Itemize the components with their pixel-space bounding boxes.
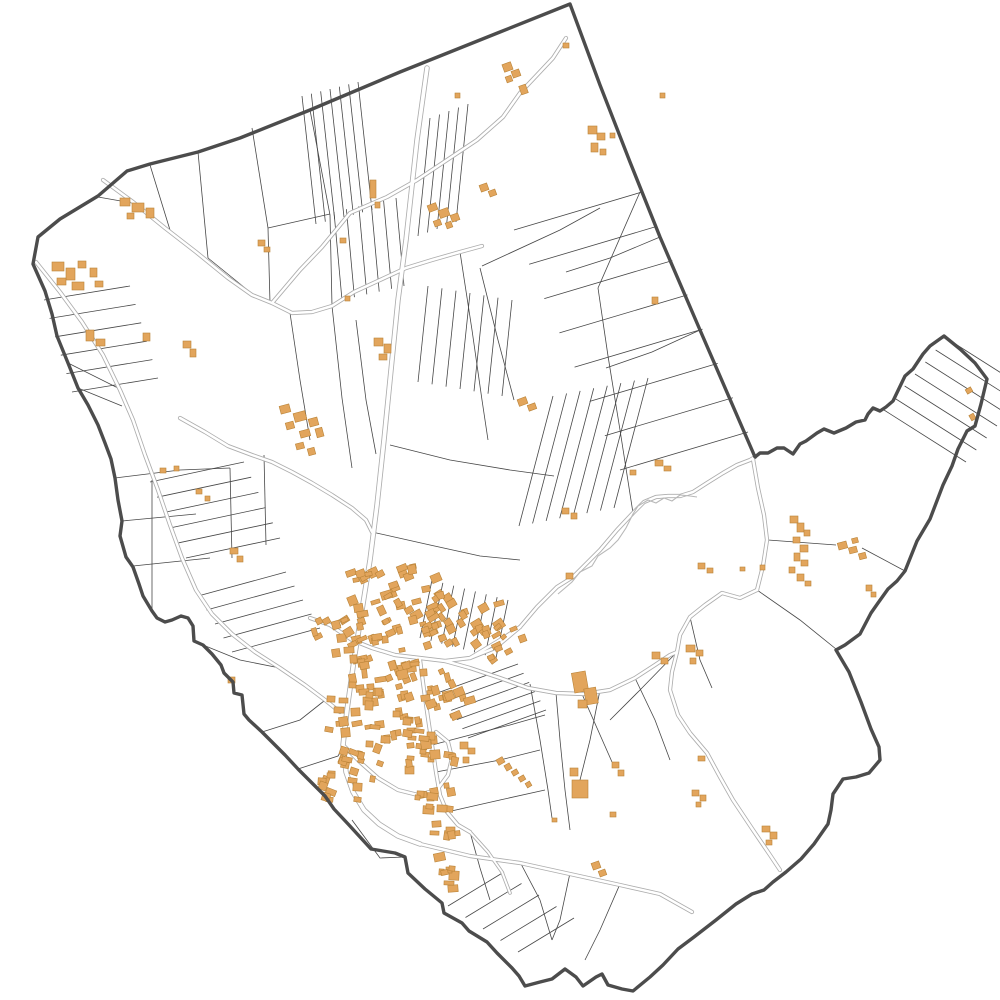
parcel-line [447, 790, 545, 812]
building [279, 404, 291, 414]
building [174, 466, 179, 471]
building [766, 840, 772, 845]
building [196, 489, 202, 494]
building [797, 523, 804, 532]
building [327, 696, 335, 702]
parcel-line [390, 445, 554, 476]
building [578, 700, 587, 708]
building [371, 599, 381, 605]
parcel-line [585, 884, 620, 960]
building [612, 762, 619, 768]
building [356, 622, 363, 630]
building [340, 617, 348, 624]
building [52, 262, 64, 271]
building [66, 268, 75, 280]
road-casing [103, 180, 482, 313]
strip-parcel-line [418, 286, 428, 382]
building [423, 641, 432, 650]
building [502, 62, 513, 73]
municipal-boundary [33, 4, 987, 991]
building [373, 743, 383, 754]
building [299, 429, 310, 438]
strip-parcel-line [573, 386, 607, 516]
building [407, 743, 415, 749]
building [285, 421, 295, 430]
building [455, 93, 460, 98]
building [591, 861, 601, 870]
building [600, 149, 606, 155]
building [376, 605, 386, 616]
building [374, 338, 383, 346]
building [146, 208, 154, 218]
road-fills [36, 38, 780, 912]
building [339, 698, 348, 703]
building [379, 354, 387, 360]
building [463, 757, 469, 763]
building [566, 573, 573, 579]
building [160, 468, 166, 473]
building [871, 592, 876, 597]
parcel-line [372, 532, 520, 560]
building [837, 541, 848, 550]
building [143, 333, 150, 341]
parcel-line [768, 540, 836, 545]
building [419, 735, 429, 741]
building [517, 397, 528, 407]
building [446, 787, 455, 796]
building [494, 600, 505, 608]
strip-parcel-line [50, 304, 136, 318]
parcel-line [862, 548, 905, 571]
road-casings [36, 38, 780, 912]
building [382, 636, 389, 644]
building [652, 297, 658, 304]
parcel-line [332, 306, 352, 468]
building [488, 189, 497, 197]
building [127, 213, 134, 219]
building [430, 750, 441, 760]
building [384, 344, 391, 353]
building [610, 133, 615, 138]
parcel-line [480, 268, 514, 400]
parcel-line [606, 330, 700, 368]
building [655, 460, 663, 466]
building [427, 792, 439, 800]
building [444, 881, 454, 885]
building [652, 652, 660, 659]
building [388, 660, 397, 671]
building [698, 756, 705, 761]
building [700, 795, 706, 801]
building [432, 821, 441, 828]
building [588, 126, 597, 134]
building [562, 508, 569, 514]
parcel-line [262, 701, 324, 732]
building [692, 790, 699, 796]
building [258, 240, 265, 246]
building [340, 238, 346, 243]
strip-parcel-line [605, 398, 733, 436]
building [421, 585, 430, 593]
building [350, 655, 357, 663]
building [793, 537, 800, 543]
building [438, 208, 450, 219]
building [447, 831, 455, 840]
building [790, 516, 798, 523]
strip-parcel-line [483, 895, 539, 929]
building [408, 615, 418, 625]
building [438, 634, 447, 642]
strip-parcel-line [466, 884, 522, 918]
building [511, 769, 519, 776]
strip-parcel-line [462, 701, 540, 729]
building [57, 278, 66, 285]
building [740, 567, 745, 571]
building [525, 781, 532, 788]
building [858, 552, 866, 560]
parcel-line [133, 558, 210, 566]
building [450, 213, 460, 222]
building [426, 804, 433, 809]
strip-parcel-line [559, 295, 687, 333]
cadastral-map [0, 0, 1000, 1000]
strip-parcel-line [620, 432, 748, 470]
building [518, 634, 527, 643]
stream-line [558, 495, 697, 594]
parcel-line [520, 862, 552, 940]
building [770, 832, 777, 839]
building [414, 728, 424, 733]
parcel-line [150, 165, 196, 252]
building [448, 885, 458, 893]
building [572, 780, 588, 798]
building [370, 180, 376, 198]
strip-parcel-line [546, 391, 580, 521]
strip-parcel-line [501, 907, 557, 941]
building [866, 585, 872, 591]
building [396, 626, 403, 634]
strip-parcel-line [529, 226, 657, 264]
building [794, 553, 800, 561]
strip-parcel-line [575, 329, 703, 367]
building [686, 645, 695, 652]
building [505, 75, 513, 83]
building [366, 692, 373, 698]
road-surface [520, 457, 755, 627]
building [370, 776, 376, 783]
building [308, 417, 319, 427]
parcel-line [757, 590, 836, 649]
strip-parcel-line [468, 710, 546, 738]
building [372, 633, 383, 641]
building [851, 537, 858, 543]
building [331, 648, 340, 657]
building [78, 261, 86, 268]
building [470, 638, 481, 649]
building [460, 742, 468, 749]
building [570, 768, 578, 776]
building [375, 688, 382, 696]
strip-parcel-line [533, 393, 567, 523]
strip-parcel-line [514, 192, 642, 230]
strip-parcel-line [587, 383, 621, 513]
building [410, 672, 418, 681]
building [478, 602, 490, 613]
building [660, 93, 665, 98]
building [437, 805, 447, 812]
parcel-line [556, 693, 570, 830]
building [376, 760, 383, 767]
building [393, 711, 400, 717]
building [395, 683, 402, 689]
building [518, 775, 526, 782]
building [415, 795, 420, 800]
building [479, 183, 489, 192]
road-surface [103, 180, 482, 313]
building [353, 578, 360, 583]
building [190, 349, 196, 357]
building [696, 802, 701, 807]
building [96, 339, 105, 346]
building [352, 720, 363, 727]
building [789, 567, 795, 573]
building [366, 741, 373, 747]
building [441, 869, 449, 875]
building [205, 496, 210, 501]
building [402, 729, 412, 737]
parcel-line [356, 320, 376, 454]
strip-parcel-line [371, 204, 379, 292]
building [344, 647, 354, 654]
building [444, 783, 450, 789]
building [456, 618, 465, 628]
building [848, 546, 857, 554]
strip-parcel-line [457, 692, 535, 720]
building [707, 568, 713, 573]
strip-parcel-line [55, 323, 141, 337]
building [664, 466, 671, 471]
building [345, 569, 356, 578]
road-casing [343, 68, 427, 844]
cadastral-map-canvas [0, 0, 1000, 1000]
strip-parcel-line [432, 288, 442, 384]
building [661, 658, 668, 664]
building [72, 282, 84, 290]
building [420, 669, 427, 676]
parcel-line [482, 208, 600, 266]
building [591, 143, 598, 152]
building [618, 770, 624, 776]
building [375, 676, 387, 683]
building [120, 198, 130, 206]
strip-parcel-line [460, 293, 470, 389]
building [365, 701, 373, 710]
building [349, 682, 356, 688]
building [399, 647, 406, 652]
strip-parcel-line [179, 523, 273, 543]
building [430, 831, 439, 835]
building [433, 219, 442, 227]
building [597, 133, 605, 140]
building [571, 513, 577, 519]
strip-parcel-line [544, 261, 672, 299]
building [381, 736, 390, 744]
strip-parcel-line [207, 586, 295, 610]
building [468, 748, 475, 754]
building [307, 447, 316, 456]
building [375, 202, 380, 208]
road-surface [420, 844, 692, 912]
building [407, 756, 414, 761]
building [511, 69, 521, 78]
building [90, 268, 97, 277]
parcel-line [310, 110, 332, 306]
building [527, 403, 537, 411]
road-casing [36, 262, 340, 712]
building [351, 708, 360, 716]
building [610, 812, 616, 817]
parcel-line [115, 468, 230, 478]
building [370, 724, 380, 729]
building [362, 669, 368, 678]
building [183, 341, 191, 348]
building [338, 716, 348, 726]
parcel-line [268, 214, 330, 228]
building [412, 598, 422, 605]
strip-parcel-line [447, 108, 459, 226]
strip-parcel-line [519, 396, 553, 526]
building [407, 564, 417, 574]
building [230, 548, 238, 554]
road-casing [520, 457, 755, 627]
parcel-line [530, 684, 552, 818]
building [331, 620, 341, 630]
building [295, 442, 304, 450]
road-surface [180, 418, 372, 532]
building [341, 728, 351, 738]
strip-parcel-line [164, 492, 258, 512]
strip-parcel-line [560, 388, 594, 518]
building [325, 726, 334, 732]
building [698, 563, 705, 569]
building [132, 203, 144, 212]
road-surface [36, 262, 340, 712]
strip-parcel-line [590, 363, 718, 401]
parcel-line [298, 746, 344, 769]
building [410, 662, 419, 667]
stream-lines [558, 495, 697, 594]
building-footprints [52, 43, 976, 892]
strip-parcel-line [614, 378, 648, 508]
building [334, 707, 344, 713]
building [237, 556, 243, 562]
building [349, 767, 359, 776]
building [427, 203, 438, 213]
boundary-outline [33, 4, 987, 991]
building [445, 221, 453, 229]
building [797, 574, 804, 581]
building [357, 751, 364, 759]
strip-parcel-line [446, 291, 456, 387]
building [630, 470, 636, 475]
strip-parcel-line [232, 628, 320, 652]
building [760, 565, 765, 570]
strip-parcel-line [198, 572, 286, 596]
strip-parcel-line [488, 298, 498, 394]
strip-parcel-line [456, 104, 468, 222]
strip-parcel-line [359, 206, 367, 294]
strip-parcel-line [172, 508, 266, 528]
parcel-line [252, 128, 270, 303]
parcel-lines [68, 110, 905, 960]
building [504, 648, 513, 656]
strip-parcel-line [215, 600, 303, 624]
building [293, 411, 307, 423]
building [598, 869, 607, 877]
parcel-line [122, 514, 196, 521]
building [496, 757, 505, 766]
strip-parcel-line [157, 477, 251, 497]
building [690, 658, 696, 664]
strip-field-lines [44, 82, 1000, 952]
parcel-line [264, 455, 266, 545]
building [805, 581, 811, 586]
strip-parcel-line [224, 614, 312, 638]
building [264, 247, 270, 252]
building [800, 545, 808, 552]
strip-parcel-line [346, 209, 354, 297]
building [95, 281, 103, 287]
building [327, 773, 335, 778]
building [552, 818, 557, 822]
building [353, 783, 362, 791]
building [450, 710, 462, 720]
building [801, 560, 808, 566]
building [762, 826, 770, 832]
building [450, 756, 459, 766]
building [804, 530, 810, 536]
building [86, 330, 94, 341]
parcel-line [598, 192, 640, 288]
building [414, 717, 420, 725]
strip-parcel-line [502, 300, 512, 396]
building [403, 718, 411, 726]
building [359, 661, 369, 669]
building [354, 796, 362, 802]
strip-parcel-line [518, 918, 574, 952]
building [433, 852, 445, 862]
building [449, 866, 455, 872]
building [696, 650, 703, 656]
building [345, 296, 350, 301]
parcel-line [198, 152, 208, 258]
building [504, 763, 512, 771]
building [563, 43, 569, 48]
building [315, 427, 324, 438]
